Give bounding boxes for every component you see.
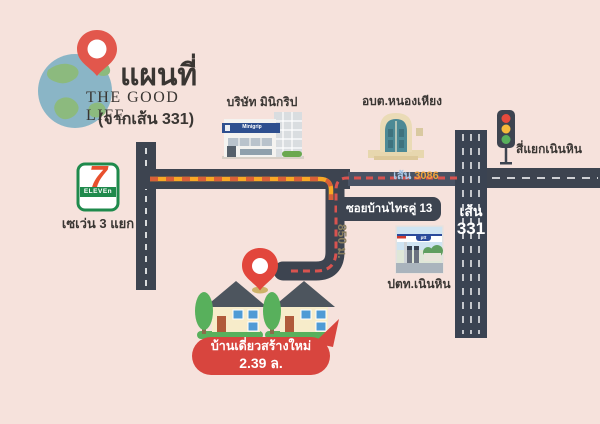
company-label: บริษัท มินิกริป [218, 93, 306, 112]
tree-icon [195, 292, 213, 334]
destination-pin-icon [242, 248, 278, 291]
route-3086-label: เส้น 3086 [381, 170, 451, 182]
soi-label: ซอยบ้านไทรคู่ 13 [337, 197, 441, 221]
route-3086-prefix: เส้น [393, 170, 411, 182]
house-icon [273, 281, 335, 332]
destination-bubble: บ้านเดี่ยวสร้างใหม่ 2.39 ล. [192, 337, 330, 375]
intersection-label: สี่แยกเนินหิน [516, 140, 600, 159]
route-331-prefix: เส้น [455, 203, 487, 219]
road-soi-branch [283, 180, 335, 271]
page-subtitle: (จากเส้น 331) [98, 107, 208, 132]
ptt-label: ปตท.เนินหิน [386, 275, 452, 294]
tree-icon [263, 292, 281, 334]
soi-distance-label: 850 ม. [332, 224, 351, 284]
seven-eleven-wordmark: ELEVEn [80, 187, 116, 197]
seven-eleven-label: เซเว่น 3 แยก [56, 213, 140, 234]
destination-price: 2.39 ล. [192, 355, 330, 373]
route-331-label: เส้น 331 [455, 203, 487, 239]
company-building-icon [222, 112, 304, 159]
ptt-logo: ptt [416, 234, 431, 241]
company-building-sign: Minigrip [231, 124, 273, 130]
sao-building-icon [368, 113, 424, 160]
map-infographic: แผนที่ THE GOOD LIFE (จากเส้น 331) บริษั… [0, 0, 600, 424]
sao-label: อบต.หนองเหียง [352, 92, 452, 111]
route-331-number: 331 [455, 219, 487, 239]
destination-name: บ้านเดี่ยวสร้างใหม่ [192, 339, 330, 355]
route-3086-number: 3086 [414, 170, 438, 182]
traffic-light-icon [497, 110, 515, 165]
